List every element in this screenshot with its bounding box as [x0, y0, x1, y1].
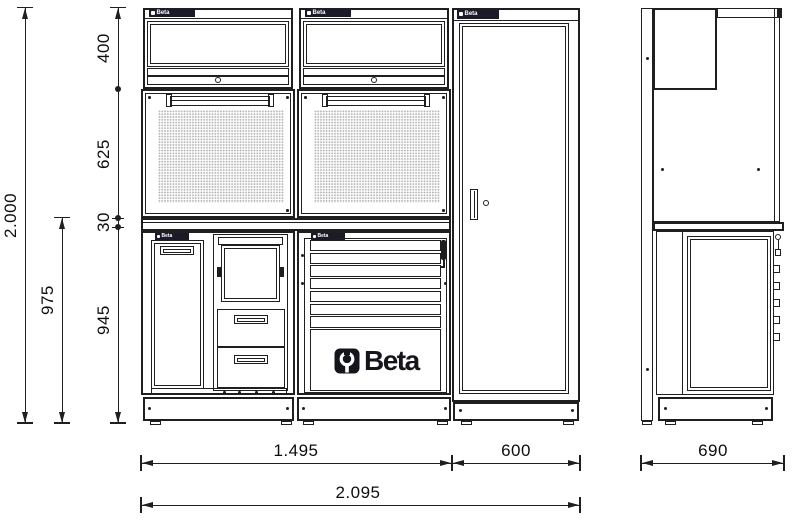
- dim-label: 625: [93, 128, 115, 180]
- dim-arrow-left: [142, 502, 153, 508]
- dim-node: [115, 215, 121, 221]
- dim-label: 1.495: [246, 441, 346, 461]
- key-icon: [778, 240, 780, 249]
- dim-arrow-down: [59, 412, 65, 423]
- dim-label: 690: [671, 441, 755, 461]
- dim-label: 30: [93, 204, 115, 240]
- dim-arrow-down: [22, 412, 28, 423]
- top-rail-cap: [777, 9, 781, 17]
- dim-arrow-up: [22, 8, 28, 19]
- top-rail-side: [717, 8, 782, 18]
- drawer-tab: [773, 282, 780, 290]
- foot: [642, 421, 652, 425]
- dim-tick: [783, 455, 785, 471]
- dim-label: 600: [476, 441, 556, 461]
- dim-label: 400: [93, 22, 115, 74]
- base-side-door-inner: [690, 239, 768, 388]
- drawer-tab: [773, 265, 780, 273]
- back-panel: [641, 8, 653, 421]
- dim-arrow-right: [772, 460, 783, 466]
- technical-drawing: Beta Beta: [0, 0, 800, 523]
- dim-label: 975: [37, 272, 59, 328]
- worktop-side: [653, 222, 784, 231]
- dim-arrow-right: [568, 502, 579, 508]
- dim-label: 2.000: [0, 183, 22, 247]
- wall-cabinet-side: [653, 8, 717, 90]
- dim-line: [62, 218, 64, 423]
- base-side-line: [682, 231, 683, 395]
- dim-arrow-down: [115, 412, 121, 423]
- dim-arrow-left: [142, 460, 153, 466]
- dim-arrow-left: [642, 460, 653, 466]
- dim-line: [452, 463, 580, 465]
- dim-arrow-right: [568, 460, 579, 466]
- drawer-tab: [773, 316, 780, 324]
- dim-line: [141, 463, 452, 465]
- dim-arrow-up: [59, 218, 65, 229]
- drawer-tab: [773, 299, 780, 307]
- dim-node: [115, 224, 121, 230]
- dim-label: 2.095: [303, 483, 413, 503]
- foot: [665, 421, 676, 425]
- dim-arrow-up: [115, 8, 121, 19]
- drawer-tab: [773, 333, 780, 341]
- dim-node: [115, 86, 121, 92]
- dim-arrow-left: [453, 460, 464, 466]
- dim-line: [141, 505, 580, 507]
- dim-line: [25, 8, 27, 423]
- dim-label: 945: [93, 292, 115, 348]
- dim-tick: [579, 497, 581, 513]
- dim-arrow-right: [440, 460, 451, 466]
- key-icon: [775, 249, 781, 256]
- dim-tick: [579, 455, 581, 471]
- side-front-line: [774, 8, 775, 222]
- foot: [752, 421, 763, 425]
- dim-line: [641, 463, 784, 465]
- plinth-side: [658, 397, 773, 421]
